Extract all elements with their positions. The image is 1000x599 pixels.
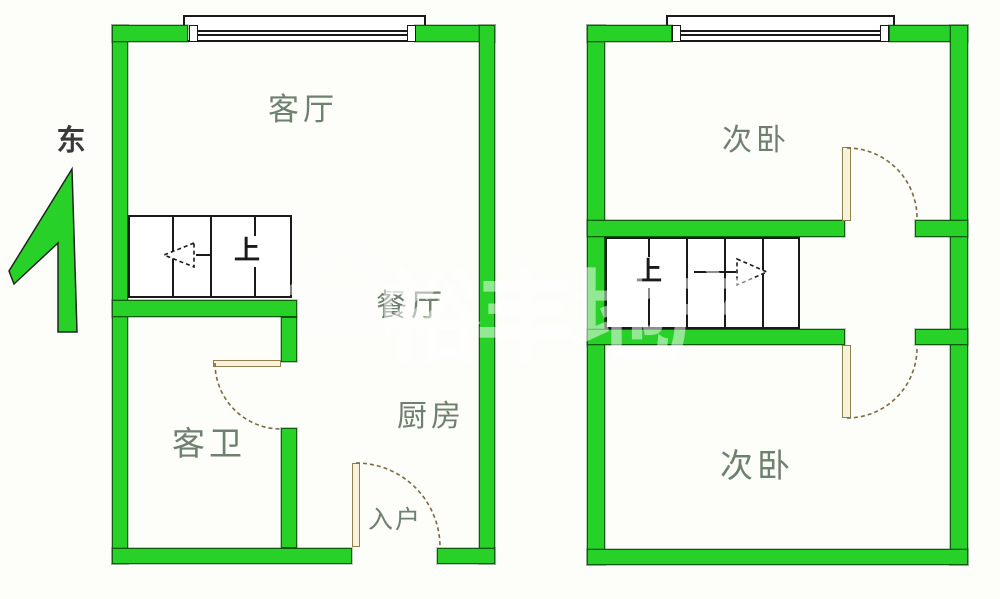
left-window-post-right xyxy=(407,25,416,42)
bathroom-wall-hook xyxy=(281,317,297,362)
room-label-living: 客厅 xyxy=(268,84,338,129)
lower-bedroom-wall-top-right xyxy=(915,329,968,345)
floorplan-canvas: 客厅 餐厅 厨房 客卫 入户 次卧 次卧 上 上 东 裕丰地产 xyxy=(0,0,1000,599)
left-window-post-left xyxy=(189,25,198,42)
room-label-dining: 餐厅 xyxy=(376,280,446,325)
compass-north-arrow-icon xyxy=(9,169,77,332)
compass-east-label: 东 xyxy=(56,117,85,159)
bathroom-door-leaf xyxy=(213,360,281,367)
right-plan-wall-west xyxy=(587,25,605,565)
bathroom-wall-right xyxy=(281,428,297,548)
right-plan-wall-south xyxy=(587,549,968,565)
left-plan-wall-west xyxy=(112,25,128,564)
entry-door-leaf xyxy=(352,463,360,547)
right-plan-window xyxy=(666,15,895,42)
room-label-entry: 入户 xyxy=(368,500,422,536)
upper-bedroom-wall-bottom-right xyxy=(915,220,968,237)
stair-step-line xyxy=(724,239,726,327)
lower-bedroom-wall-top-left xyxy=(587,329,845,345)
left-window-glass-line xyxy=(198,30,407,32)
left-plan-wall-north-left xyxy=(112,25,188,42)
lower-bedroom-door-arc xyxy=(847,348,917,418)
left-plan-window xyxy=(183,15,426,42)
upper-bedroom-door-arc xyxy=(847,148,917,218)
room-label-bathroom: 客卫 xyxy=(172,417,246,465)
right-plan-wall-east xyxy=(950,25,968,565)
lower-bedroom-door-leaf xyxy=(842,345,851,418)
room-label-kitchen: 厨房 xyxy=(397,391,465,435)
stair-step-line xyxy=(172,217,174,296)
left-plan-wall-south-right xyxy=(437,548,495,564)
right-window-glass-line xyxy=(681,30,880,32)
stair-step-line xyxy=(762,239,764,327)
left-plan-wall-south-left xyxy=(112,548,352,564)
upper-bedroom-door-leaf xyxy=(842,147,851,221)
right-window-glass-line xyxy=(681,34,880,36)
upper-bedroom-wall-bottom-left xyxy=(587,220,845,237)
left-window-glass-line xyxy=(198,34,407,36)
left-plan-wall-east xyxy=(479,25,495,564)
right-stairs-up-label: 上 xyxy=(634,257,664,288)
right-window-post-left xyxy=(672,25,681,42)
room-label-bedroom-lower: 次卧 xyxy=(720,439,794,487)
stair-step-line xyxy=(210,217,212,296)
right-window-post-right xyxy=(880,25,889,42)
bathroom-wall-top xyxy=(112,300,297,317)
right-plan-wall-north-left xyxy=(587,25,672,42)
left-plan-stairs xyxy=(128,215,292,298)
room-label-bedroom-upper: 次卧 xyxy=(722,115,790,159)
left-stairs-up-label: 上 xyxy=(232,236,262,267)
stair-step-line xyxy=(686,239,688,327)
